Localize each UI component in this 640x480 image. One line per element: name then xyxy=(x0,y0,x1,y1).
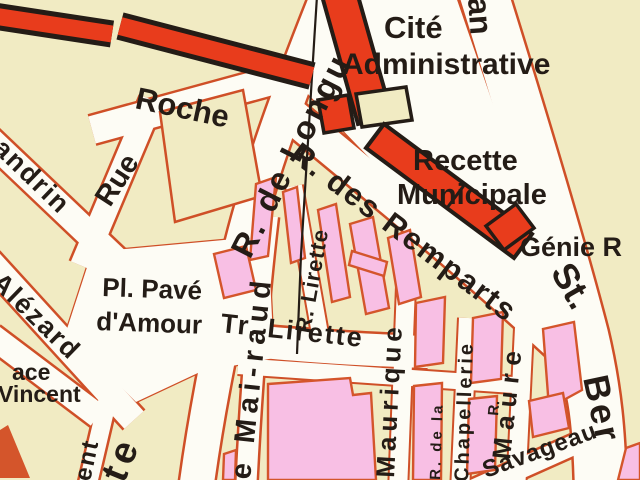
recette-municipale-label-line1: Recette xyxy=(413,145,518,177)
map-canvas: Cité Administrative Recette Municipale G… xyxy=(0,0,640,480)
genie-label: Génie R xyxy=(520,232,622,262)
place-pave-damour-label-line1: Pl. Pavé xyxy=(102,272,203,305)
city-block-pink-large xyxy=(268,378,376,480)
cite-administrative-label-line1: Cité xyxy=(384,10,443,45)
outlined-block xyxy=(356,87,412,127)
street-label-chapellerie-line1: R. de la xyxy=(427,402,447,480)
street-label-partial-top-right: an xyxy=(461,0,500,36)
cite-administrative-label-line2: Administrative xyxy=(342,48,550,81)
place-pave-damour-label-line2: d'Amour xyxy=(96,306,203,340)
place-vincent-label-line2: Vincent xyxy=(0,381,81,407)
recette-municipale-label-line2: Municipale xyxy=(397,179,547,211)
city-block-pink xyxy=(415,297,445,367)
map-image: Cité Administrative Recette Municipale G… xyxy=(0,0,640,480)
